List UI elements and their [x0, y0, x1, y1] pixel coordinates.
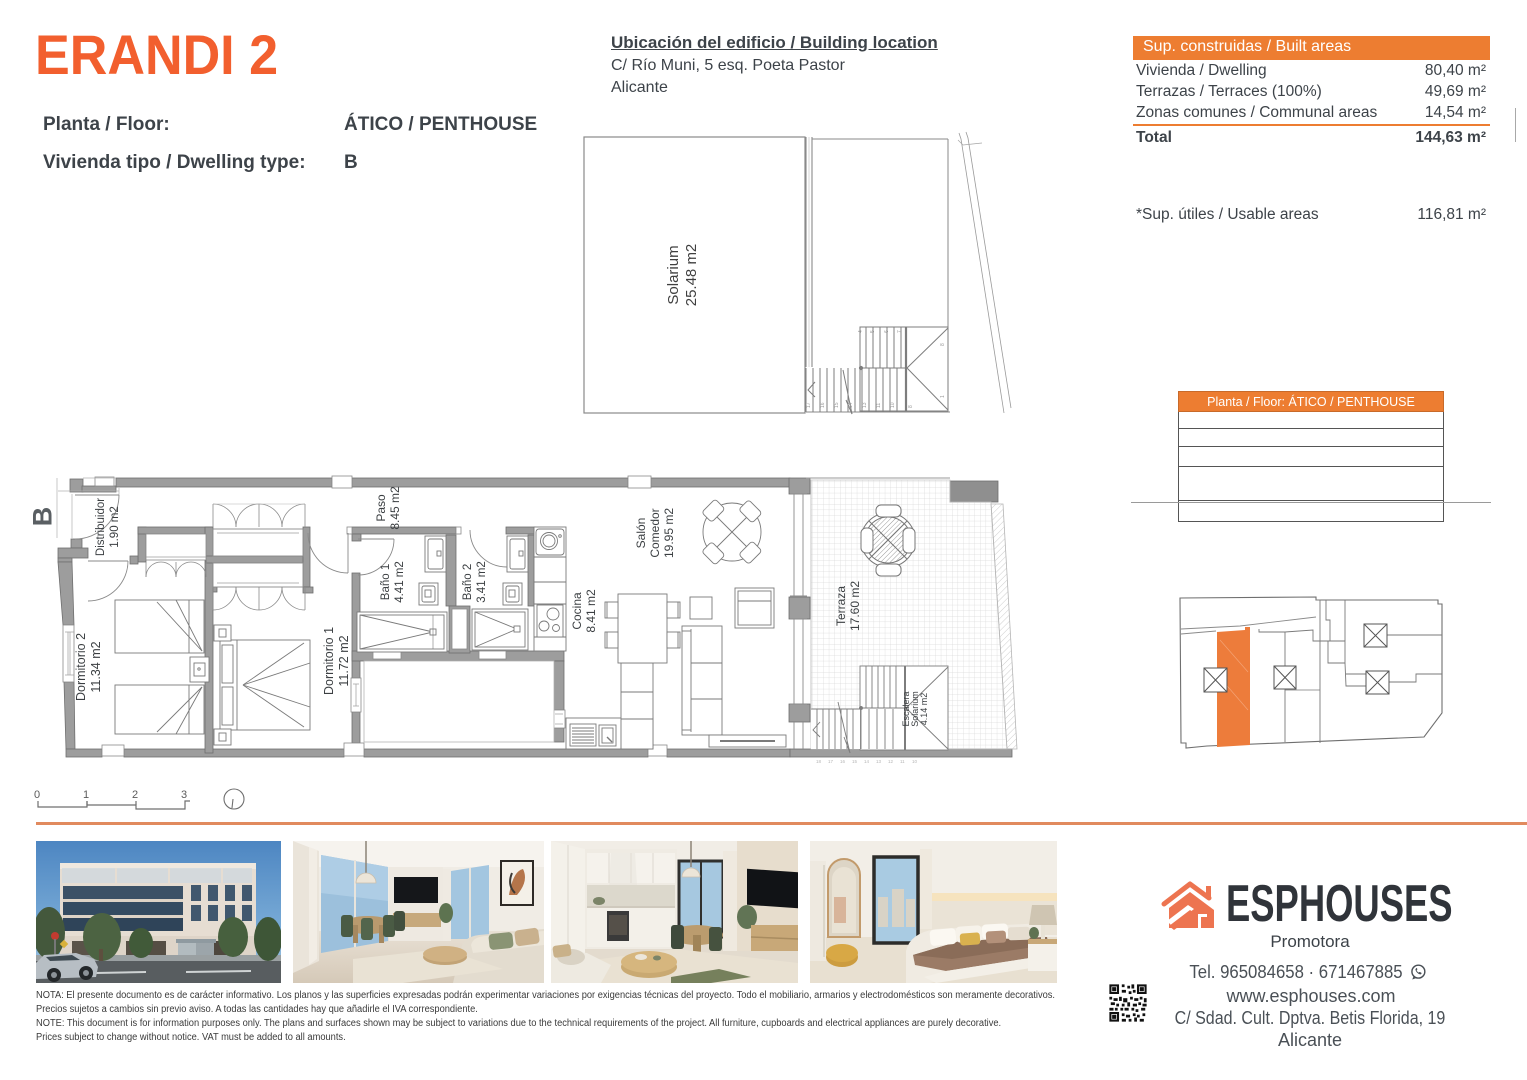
svg-text:18: 18	[816, 759, 822, 764]
svg-text:15: 15	[852, 759, 858, 764]
svg-text:12: 12	[888, 759, 894, 764]
svg-text:8: 8	[908, 405, 914, 408]
svg-text:3.41 m2: 3.41 m2	[476, 561, 488, 603]
svg-text:13: 13	[862, 402, 868, 408]
svg-text:4: 4	[858, 330, 864, 333]
svg-text:16: 16	[840, 759, 846, 764]
svg-text:Comedor: Comedor	[648, 508, 662, 557]
svg-text:11: 11	[876, 403, 882, 408]
svg-text:Solarium: Solarium	[665, 245, 682, 304]
svg-text:14: 14	[848, 402, 854, 408]
svg-text:5: 5	[870, 330, 876, 333]
svg-text:2: 2	[132, 789, 138, 801]
svg-text:19.95 m2: 19.95 m2	[662, 508, 676, 558]
svg-text:Dormitorio 1: Dormitorio 1	[322, 627, 336, 695]
svg-text:11: 11	[900, 759, 905, 764]
svg-text:10: 10	[912, 759, 918, 764]
svg-text:7: 7	[897, 330, 903, 333]
svg-text:4.41 m2: 4.41 m2	[394, 561, 406, 603]
svg-text:Baño 2: Baño 2	[462, 564, 474, 600]
svg-text:4.14 m2: 4.14 m2	[919, 693, 929, 726]
svg-text:17.60 m2: 17.60 m2	[848, 581, 862, 631]
svg-text:13: 13	[876, 759, 882, 764]
svg-text:11.72 m2: 11.72 m2	[337, 635, 351, 686]
svg-text:10: 10	[890, 402, 896, 408]
svg-text:1: 1	[83, 789, 89, 801]
svg-text:3: 3	[181, 789, 187, 801]
svg-text:8.45 m2: 8.45 m2	[388, 486, 402, 530]
svg-text:11.34 m2: 11.34 m2	[89, 641, 103, 692]
svg-text:16: 16	[820, 402, 826, 408]
svg-text:Distribuidor: Distribuidor	[95, 498, 107, 556]
svg-text:15: 15	[834, 402, 840, 408]
svg-text:14: 14	[864, 759, 870, 764]
svg-text:17: 17	[806, 402, 812, 408]
svg-text:1: 1	[940, 395, 946, 398]
svg-text:8: 8	[940, 343, 946, 346]
svg-text:Paso: Paso	[374, 494, 388, 522]
svg-text:Terraza: Terraza	[834, 586, 848, 626]
svg-text:0: 0	[34, 789, 40, 801]
svg-text:1.90 m2: 1.90 m2	[109, 506, 121, 548]
svg-text:8.41 m2: 8.41 m2	[584, 589, 598, 633]
svg-text:6: 6	[884, 330, 890, 333]
svg-text:Dormitorio 2: Dormitorio 2	[74, 633, 88, 701]
svg-text:Baño 1: Baño 1	[380, 564, 392, 600]
svg-text:Cocina: Cocina	[570, 592, 584, 630]
svg-text:Salón: Salón	[634, 518, 648, 549]
svg-text:25.48 m2: 25.48 m2	[683, 244, 700, 307]
svg-text:17: 17	[828, 759, 834, 764]
